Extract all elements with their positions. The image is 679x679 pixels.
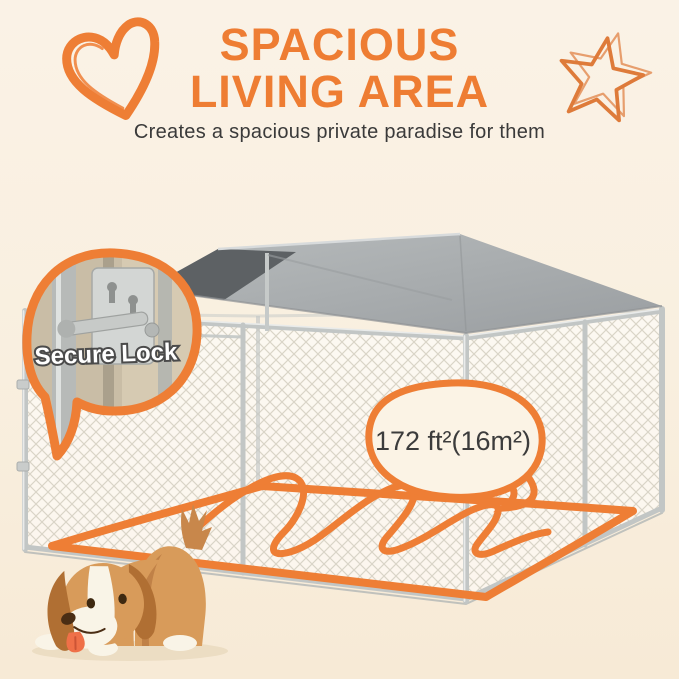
door-hinge-top: [17, 380, 29, 389]
lock-label: Secure Lock: [34, 338, 178, 370]
door-hinge-bottom: [17, 462, 29, 471]
product-marketing-image: SPACIOUS LIVING AREA Creates a spacious …: [0, 0, 679, 679]
dog-tongue-line: [74, 637, 76, 649]
dog-rear-paw: [163, 635, 197, 651]
area-label: 172 ft²(16m²): [375, 426, 531, 456]
kennel-illustration: 172 ft²(16m²): [0, 0, 679, 679]
kennel-roof: [146, 234, 662, 333]
lock-washer: [145, 323, 159, 337]
